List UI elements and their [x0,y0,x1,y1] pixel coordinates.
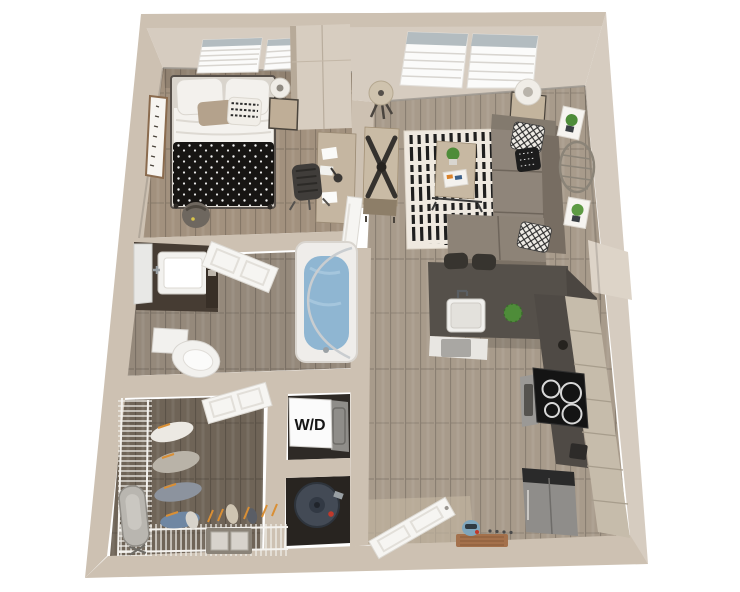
throw-pillow-2 [514,146,541,172]
cooktop [520,368,588,428]
dining-bench [363,198,397,216]
toy-vacuum [462,520,480,536]
kitchen-nook-wall [588,240,632,300]
bathtub [296,242,357,362]
wardrobe [290,24,352,130]
coffee-maker [569,443,588,460]
refrigerator [522,468,578,536]
laundry-closet: W/D [289,398,349,452]
living-window-1 [400,32,468,88]
laundry-heater-wall [284,458,350,478]
knit-pillow [227,97,262,126]
floor-plan-3d-render: W/D [0,0,740,592]
dresser [206,528,252,554]
floor-plan-canvas: W/D [0,0,740,592]
bedroom-window-1 [197,38,262,73]
bed [171,76,275,210]
magazine [443,169,468,187]
dishwasher [441,339,471,357]
countertop-item [558,340,568,350]
laundry-label: W/D [294,417,325,434]
top-wall-cap [141,12,606,28]
plant-frame-2 [564,197,591,228]
wall-art [146,96,167,178]
doormat [456,534,508,547]
vanity-mirror [134,244,152,304]
table-plant [447,148,460,161]
heater-valve [328,511,334,517]
duvet [173,142,274,206]
washer-dryer-box: W/D [289,398,332,448]
backpack [182,202,210,228]
dining-table [363,127,399,223]
vanity [134,242,218,312]
tub-faucet [323,347,329,353]
